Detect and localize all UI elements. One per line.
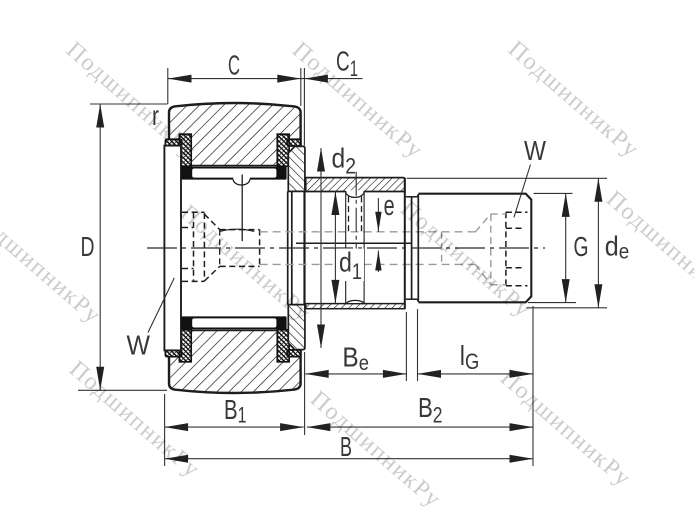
svg-text:G: G	[574, 231, 589, 262]
svg-text:W: W	[524, 135, 546, 166]
svg-text:C: C	[228, 50, 240, 81]
svg-text:W: W	[127, 330, 151, 361]
svg-text:D: D	[81, 231, 95, 262]
svg-text:e: e	[384, 190, 395, 222]
